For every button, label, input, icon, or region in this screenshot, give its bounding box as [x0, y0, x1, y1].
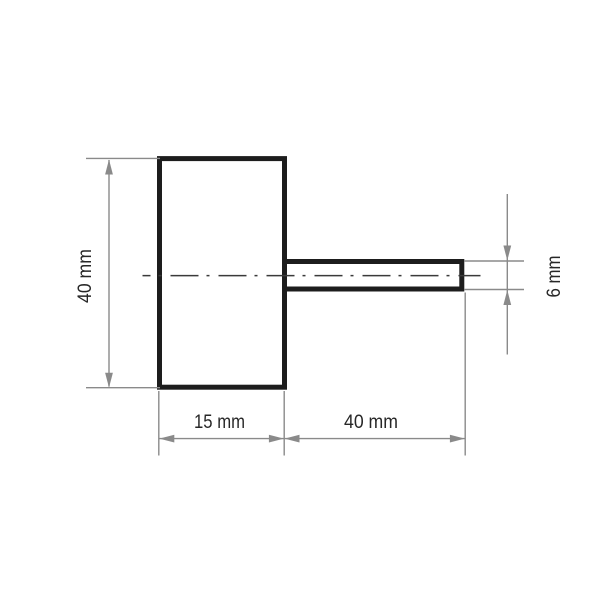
svg-text:40 mm: 40 mm — [75, 249, 96, 303]
svg-text:15 mm: 15 mm — [194, 412, 245, 433]
svg-text:40 mm: 40 mm — [344, 412, 398, 433]
svg-text:6 mm: 6 mm — [544, 256, 565, 298]
